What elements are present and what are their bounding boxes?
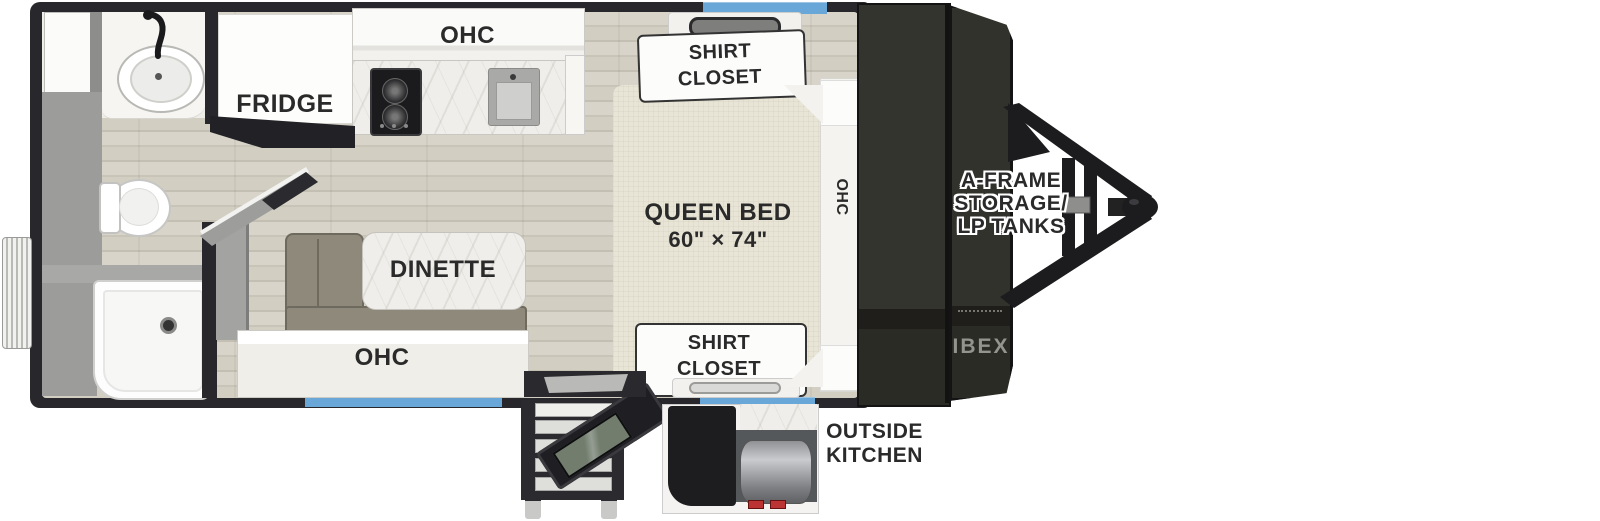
- cabinet-slot-bottom: [672, 378, 800, 398]
- dinette-partition: [216, 222, 249, 340]
- shower-drain: [160, 317, 177, 334]
- rear-bumper: [2, 237, 32, 349]
- window-bottom-left: [305, 397, 502, 407]
- bath-sink-drain: [155, 73, 162, 80]
- brand-logo: IBEX: [949, 318, 1013, 376]
- griddle-knob: [770, 500, 786, 509]
- step-foot: [601, 497, 617, 519]
- outside-kitchen-label-2: KITCHEN: [812, 445, 937, 466]
- kitchen-faucet-hole: [510, 74, 516, 80]
- bath-sink-bowl: [130, 55, 192, 103]
- hitch-coupler: [1122, 194, 1158, 220]
- stove-knob: [380, 124, 384, 128]
- aframe-label-2: STORAGE/: [935, 193, 1087, 214]
- aframe-label-3: LP TANKS: [935, 216, 1087, 237]
- bench-ohc-label: OHC: [237, 346, 527, 370]
- griddle-knob: [748, 500, 764, 509]
- bath-cabinet-side: [90, 12, 102, 92]
- bath-cabinet: [44, 12, 92, 94]
- cabinet-slot: [689, 382, 781, 394]
- queen-bed-label: QUEEN BED: [613, 201, 823, 225]
- bed-size-label: 60" × 74": [613, 229, 823, 251]
- dinette-label: DINETTE: [362, 258, 524, 282]
- outside-kitchen-counter: [740, 404, 817, 432]
- brand-tagline: [958, 310, 1002, 312]
- bathroom-wall: [202, 222, 217, 398]
- bed-ohc-label: OHC: [833, 169, 849, 225]
- stove-knob: [392, 124, 396, 128]
- stove-knob: [404, 124, 408, 128]
- outside-kitchen-label-1: OUTSIDE: [812, 421, 937, 442]
- aframe-label-1: A-FRAME: [935, 170, 1087, 191]
- kitchen-ohc-label: OHC: [352, 24, 583, 48]
- bath-floor-strip: [42, 92, 102, 267]
- aframe-gusset: [1008, 103, 1050, 162]
- toilet-seat: [119, 188, 159, 226]
- hitch-highlight: [1129, 199, 1139, 205]
- shirt-closet-bottom-label-1: SHIRT: [637, 333, 801, 353]
- outside-kitchen-griddle: [740, 440, 812, 504]
- coupler-stem: [1108, 198, 1132, 216]
- shirt-closet-bottom-label-2: CLOSET: [637, 359, 801, 379]
- cooktop: [370, 68, 422, 136]
- kitchen-sink-basin: [496, 82, 532, 120]
- toilet-tank: [99, 182, 121, 234]
- shower-pan-inner: [103, 290, 203, 392]
- fridge-label: FRIDGE: [220, 92, 350, 117]
- burner-icon: [382, 78, 408, 104]
- fridge-side-wall: [205, 12, 218, 124]
- shower-surround-left: [42, 283, 97, 396]
- floorplan-canvas: FRIDGE OHC DINETTE OHC QUEEN BED 60" × 7…: [0, 0, 1600, 521]
- outside-kitchen-panel: [668, 406, 736, 506]
- step-foot: [525, 497, 541, 519]
- kitchen-counter-end: [565, 55, 585, 135]
